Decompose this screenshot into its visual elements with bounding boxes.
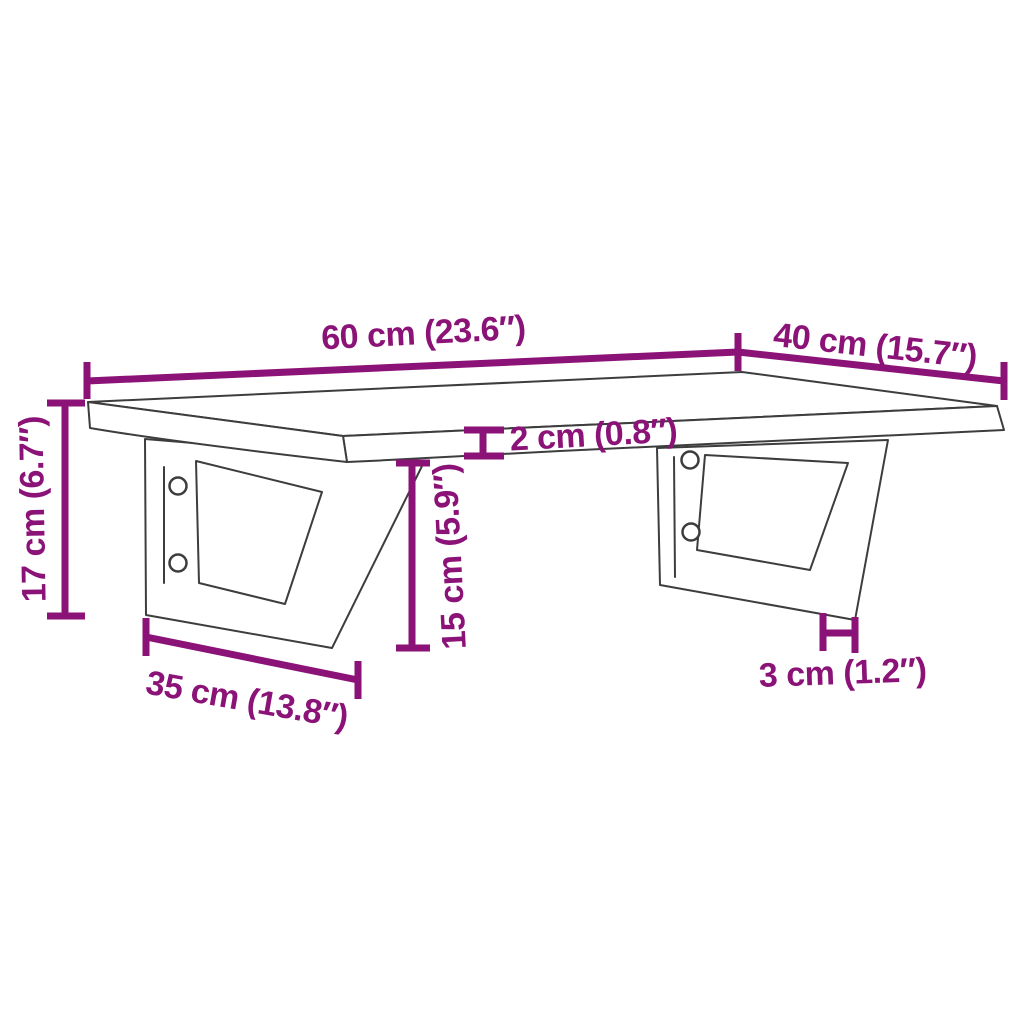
product-dimension-diagram: 60 cm (23.6″) 40 cm (15.7″) 17 cm (6.7″)… (0, 0, 1024, 1024)
right-bracket (657, 440, 888, 620)
right-bracket-screw-hole-top (682, 452, 699, 469)
total-height-dimension-label: 17 cm (6.7″) (12, 416, 53, 603)
bracket-height-dimension-label: 15 cm (5.9″) (426, 463, 474, 651)
left-bracket-screw-hole-bottom (170, 555, 187, 572)
dimension-total-height: 17 cm (6.7″) (12, 403, 85, 616)
thickness-dimension-label: 2 cm (0.8″) (509, 411, 679, 458)
dimension-bracket-arm-width: 3 cm (1.2″) (758, 613, 927, 695)
diagram-canvas: 60 cm (23.6″) 40 cm (15.7″) 17 cm (6.7″)… (0, 0, 1024, 1024)
left-bracket (145, 439, 424, 648)
width-dimension-label: 60 cm (23.6″) (320, 309, 526, 358)
right-bracket-plate-fold (674, 457, 675, 577)
arm-width-dimension-label: 3 cm (1.2″) (758, 651, 927, 695)
left-bracket-screw-hole-top (170, 478, 187, 495)
right-bracket-screw-hole-bottom (683, 524, 700, 541)
